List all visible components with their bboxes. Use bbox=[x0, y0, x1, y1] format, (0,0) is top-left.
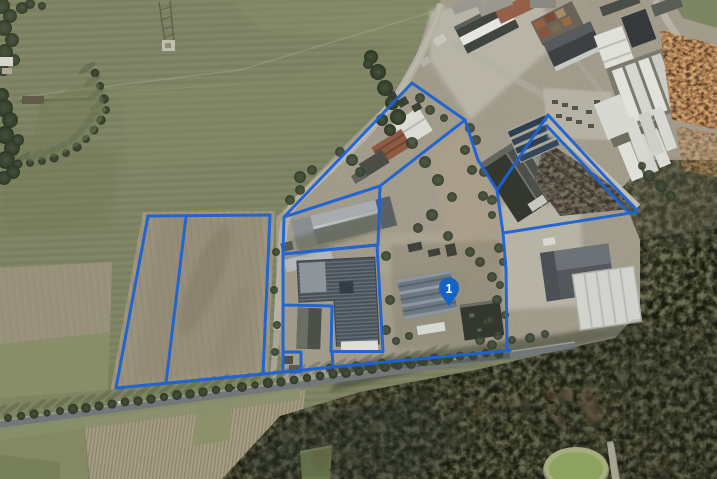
svg-text:1: 1 bbox=[446, 282, 453, 296]
